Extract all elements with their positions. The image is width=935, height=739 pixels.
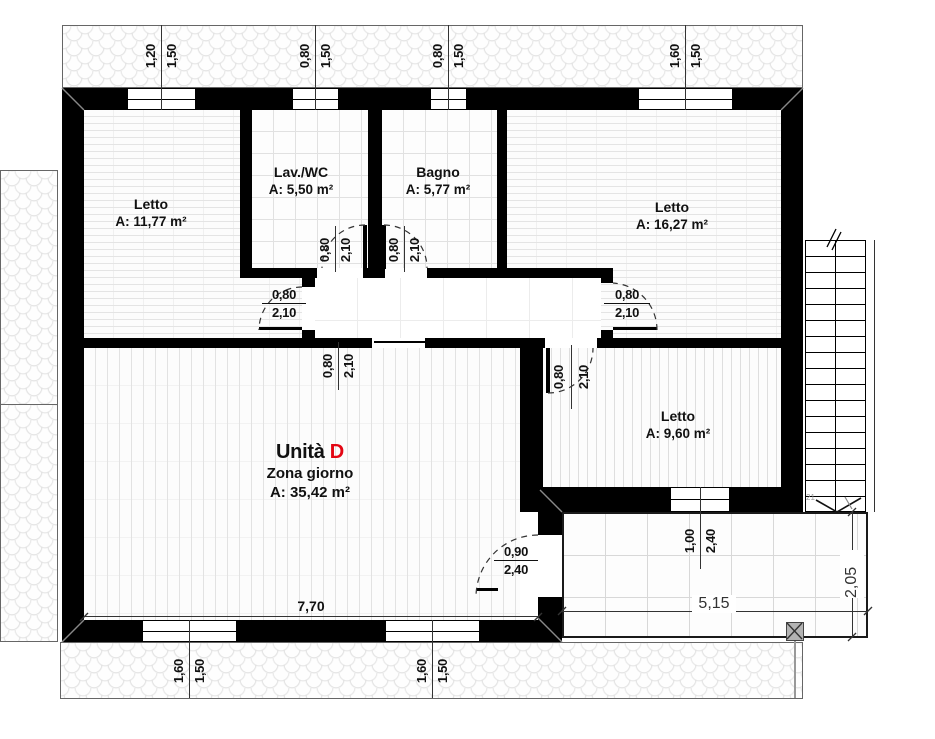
floor-corridor — [315, 278, 601, 338]
dim-height: 1,50 — [688, 44, 703, 68]
fraction-bar — [604, 303, 650, 304]
room-label-bagno: Bagno A: 5,77 m² — [378, 164, 498, 198]
dim-label-terrace-width: 5,15 — [692, 595, 736, 613]
unit-prefix: Unità — [276, 441, 330, 463]
dim-label-door-letto-ne: 0,80 2,10 — [604, 287, 650, 320]
unit-letter: D — [330, 441, 344, 463]
dim-label-door-zona: 0,80 2,10 — [320, 344, 356, 388]
wall-terrace-b — [538, 597, 562, 642]
room-name: Bagno — [378, 164, 498, 182]
floor-plan-canvas: 21 1,20 — [0, 0, 935, 739]
dim-label-door-bagno: 0,80 2,10 — [386, 228, 422, 272]
door-leaf-lav-wc — [363, 225, 367, 269]
stair-divider-line — [835, 241, 836, 511]
wall-exterior-left — [62, 88, 84, 642]
room-name: Letto — [612, 199, 732, 217]
dim-label-door-letto-e: 0,80 2,10 — [551, 348, 591, 406]
wall-bagno-letto-ne — [497, 110, 507, 268]
dim-label-win-top-3: 0,80 1,50 — [430, 28, 466, 84]
roof-hatch-left-upper — [0, 170, 58, 405]
dim-width: 1,00 — [682, 529, 697, 553]
dim-height: 1,50 — [318, 44, 333, 68]
wall-corridor-top-c — [427, 268, 601, 278]
dim-height: 2,10 — [576, 365, 591, 389]
wall-corridor-top-b — [363, 268, 385, 278]
dim-label-door-lav: 0,80 2,10 — [317, 228, 353, 272]
room-label-letto-nw: Letto A: 11,77 m² — [91, 196, 211, 230]
dim-width: 0,80 — [430, 44, 445, 68]
stair-step-count: 21 — [806, 493, 815, 502]
door-leaf-letto-nw — [259, 327, 302, 330]
dim-label-terrace-depth: 2,05 — [840, 550, 864, 598]
unit-title: Unità D — [230, 440, 390, 465]
room-label-lav-wc: Lav./WC A: 5,50 m² — [241, 164, 361, 198]
wall-stub-left-top — [302, 273, 315, 287]
wall-letto-e-bottom-a — [543, 487, 670, 512]
dim-line-zona-width — [84, 616, 538, 617]
dim-width: 0,80 — [320, 354, 335, 378]
dim-height: 2,10 — [615, 305, 639, 320]
dim-label-win-bottom-2: 1,60 1,50 — [414, 645, 450, 697]
door-leaf-letto-ne — [613, 327, 657, 330]
wall-exterior-bottom — [62, 620, 562, 642]
dim-width: 1,60 — [414, 659, 429, 683]
dim-height: 2,40 — [504, 562, 528, 577]
dim-label-win-top-2: 0,80 1,50 — [297, 28, 333, 84]
wall-stub-right-top — [601, 268, 613, 283]
room-area: A: 5,50 m² — [241, 182, 361, 199]
dim-height: 2,10 — [407, 238, 422, 262]
room-label-letto-ne: Letto A: 16,27 m² — [612, 199, 732, 233]
dim-label-door-letto-nw: 0,80 2,10 — [262, 287, 306, 320]
dim-label-door-terrace: 0,90 2,40 — [494, 544, 538, 577]
room-name: Zona giorno — [230, 465, 390, 484]
dim-width: 1,20 — [143, 44, 158, 68]
dim-height: 2,10 — [338, 238, 353, 262]
dim-width: 0,80 — [317, 238, 332, 262]
wall-zona-letto-e — [520, 348, 543, 490]
wall-exterior-right — [781, 88, 803, 512]
dim-label-win-top-1: 1,20 1,50 — [143, 28, 179, 84]
dim-height: 1,50 — [435, 659, 450, 683]
room-label-zona-giorno: Unità D Zona giorno A: 35,42 m² — [230, 440, 390, 503]
room-area: A: 35,42 m² — [230, 484, 390, 503]
dim-width: 0,80 — [551, 365, 566, 389]
fraction-bar — [494, 560, 538, 561]
dim-height: 2,40 — [703, 529, 718, 553]
room-area: A: 9,60 m² — [618, 426, 738, 443]
room-area: A: 5,77 m² — [378, 182, 498, 199]
room-name: Lav./WC — [241, 164, 361, 182]
wall-letto-e-bottom-b — [730, 487, 803, 512]
dim-width: 0,90 — [504, 544, 528, 559]
dim-label-win-bottom-1: 1,60 1,50 — [171, 645, 207, 697]
wall-terrace-a — [538, 512, 562, 535]
dim-width: 1,60 — [171, 659, 186, 683]
wall-letto-e-top — [597, 338, 781, 348]
stair-outer-rail — [874, 240, 875, 512]
door-leaf-letto-e — [546, 348, 550, 393]
wall-stub-left-bottom — [302, 330, 315, 338]
room-name: Letto — [91, 196, 211, 214]
dim-width: 0,80 — [272, 287, 296, 302]
door-leaf-terrace — [477, 588, 498, 591]
dim-height: 2,10 — [272, 305, 296, 320]
dim-label-win-top-4: 1,60 1,50 — [667, 28, 703, 84]
dim-height: 2,10 — [341, 354, 356, 378]
fraction-bar — [262, 303, 306, 304]
dim-label-zona-width: 7,70 — [289, 598, 333, 614]
wall-corridor-bottom-b — [425, 338, 545, 348]
dim-width: 0,80 — [297, 44, 312, 68]
dim-width: 0,80 — [615, 287, 639, 302]
dim-height: 1,50 — [192, 659, 207, 683]
dim-height: 1,50 — [451, 44, 466, 68]
roof-edge-line — [794, 641, 796, 698]
roof-hatch-left-lower — [0, 404, 58, 642]
dim-width: 0,80 — [386, 238, 401, 262]
room-label-letto-e: Letto A: 9,60 m² — [618, 408, 738, 442]
room-area: A: 16,27 m² — [612, 217, 732, 234]
exterior-staircase — [805, 240, 866, 512]
dim-width: 1,60 — [667, 44, 682, 68]
dim-height: 1,50 — [164, 44, 179, 68]
pillar-marker — [786, 622, 804, 641]
room-name: Letto — [618, 408, 738, 426]
sliding-door-leaf-zona — [374, 341, 425, 343]
dim-label-win-letto-e: 1,00 2,40 — [682, 513, 718, 569]
room-area: A: 11,77 m² — [91, 214, 211, 231]
